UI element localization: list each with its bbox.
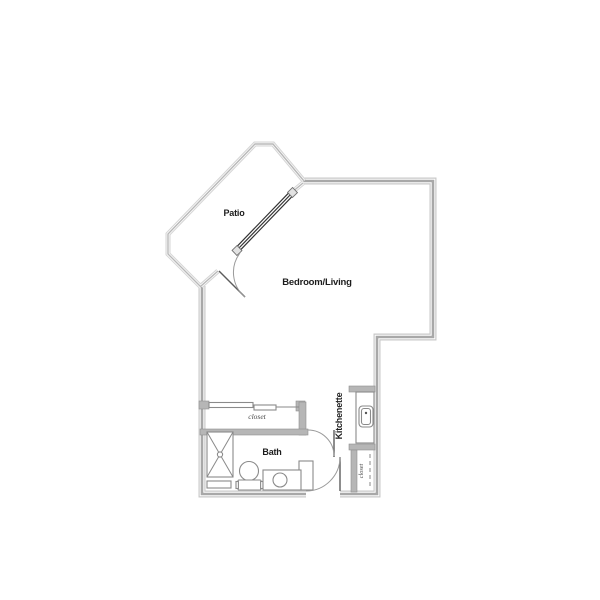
sliding-glass-door-icon <box>232 188 297 256</box>
patio-door-icon <box>219 253 245 297</box>
bath-door-icon <box>308 430 334 457</box>
toilet-icon <box>236 462 263 491</box>
kitchenette-label: Kitchenette <box>334 392 344 439</box>
bedroom-living-label: Bedroom/Living <box>282 277 352 288</box>
patio-label: Patio <box>223 208 245 218</box>
bath-label: Bath <box>262 447 281 457</box>
shower-icon <box>207 432 233 488</box>
entry-closet-label: closet <box>358 464 365 479</box>
floor-plan: Patio Bedroom/Living closet Bath Kitchen… <box>0 0 600 600</box>
floor-plan-page: Patio Bedroom/Living closet Bath Kitchen… <box>0 0 600 600</box>
closet-label: closet <box>248 412 266 421</box>
exterior-walls <box>202 181 433 494</box>
bathroom-sink-icon <box>263 461 313 490</box>
closet-sliding-doors-icon <box>209 403 299 411</box>
kitchen-sink-icon <box>359 406 373 427</box>
